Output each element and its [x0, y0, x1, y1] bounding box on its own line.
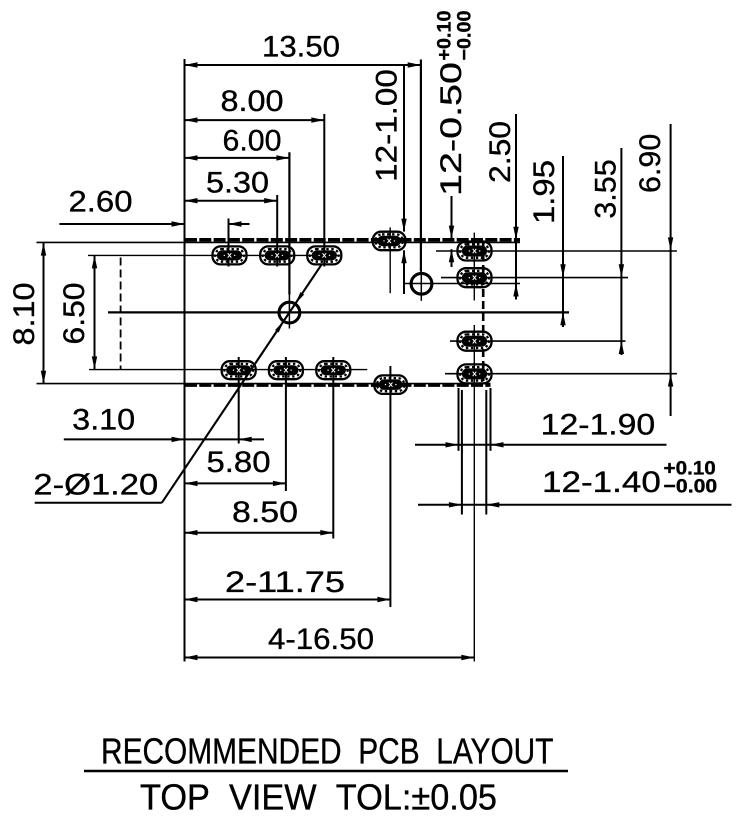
- svg-text:8.50: 8.50: [232, 496, 298, 529]
- svg-text:+0.10: +0.10: [434, 11, 455, 61]
- svg-text:2-11.75: 2-11.75: [225, 566, 345, 599]
- svg-text:2-Ø1.20: 2-Ø1.20: [33, 469, 158, 502]
- svg-text:13.50: 13.50: [262, 31, 340, 64]
- svg-text:4-16.50: 4-16.50: [268, 623, 374, 656]
- svg-text:6.00: 6.00: [223, 124, 282, 157]
- svg-text:8.00: 8.00: [221, 85, 284, 118]
- svg-text:3.55: 3.55: [590, 159, 623, 218]
- svg-text:−0.00: −0.00: [455, 11, 476, 61]
- svg-text:2.60: 2.60: [69, 186, 133, 219]
- svg-text:5.80: 5.80: [207, 446, 271, 479]
- svg-text:3.10: 3.10: [72, 404, 135, 437]
- svg-text:1.95: 1.95: [528, 160, 561, 224]
- svg-text:−0.00: −0.00: [664, 476, 718, 498]
- svg-text:8.10: 8.10: [8, 283, 41, 346]
- svg-text:6.90: 6.90: [634, 134, 667, 193]
- svg-text:12-1.90: 12-1.90: [541, 409, 656, 442]
- svg-text:12-1.00: 12-1.00: [371, 69, 404, 182]
- svg-text:2.50: 2.50: [484, 121, 517, 183]
- svg-text:RECOMMENDED PCB LAYOUT: RECOMMENDED PCB LAYOUT: [101, 731, 554, 772]
- svg-text:TOP VIEW TOL:±0.05: TOP VIEW TOL:±0.05: [140, 777, 497, 818]
- svg-text:6.50: 6.50: [58, 283, 91, 345]
- svg-text:5.30: 5.30: [206, 166, 269, 199]
- svg-text:12-0.50: 12-0.50: [435, 62, 468, 196]
- svg-text:12-1.40: 12-1.40: [542, 466, 661, 499]
